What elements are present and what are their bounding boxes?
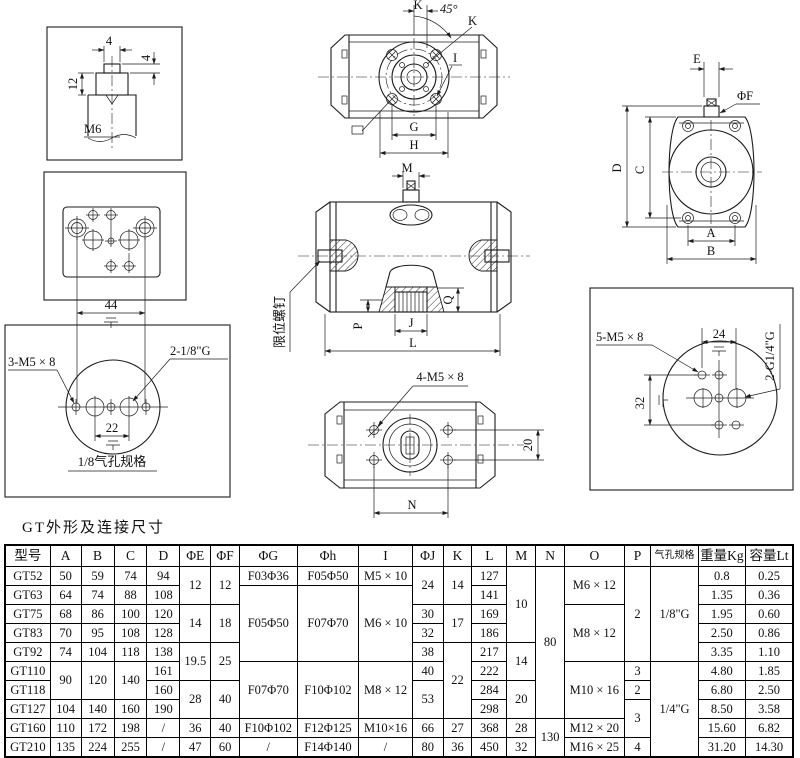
table-cell: M10 × 16	[565, 662, 625, 719]
table-cell: 19.5	[180, 643, 211, 681]
table-cell: 141	[472, 586, 507, 605]
table-cell: 20	[507, 681, 536, 719]
table-cell: 28	[180, 681, 211, 719]
table-cell: 60	[211, 738, 240, 758]
table-cell: 25	[211, 643, 240, 681]
table-cell: M5 × 10	[359, 567, 412, 586]
table-cell: F10Φ102	[297, 662, 359, 719]
table-cell: 120	[147, 605, 180, 624]
table-cell: 14	[507, 643, 536, 681]
dim-c-label: C	[633, 166, 647, 174]
table-cell: 14	[180, 605, 211, 643]
table-cell: 1.85	[746, 662, 793, 681]
table-cell: F12Φ125	[297, 719, 359, 738]
table-cell: 108	[147, 586, 180, 605]
table-cell: 36	[180, 719, 211, 738]
port-2-18g-label: 2-1/8"G	[170, 344, 211, 358]
table-cell: 15.60	[698, 719, 745, 738]
table-cell: 30	[412, 605, 443, 624]
table-cell: F03Φ36	[239, 567, 297, 586]
table-cell: 1/8"G	[651, 567, 698, 662]
table-cell: 0.8	[698, 567, 745, 586]
column-header: P	[624, 545, 651, 567]
table-cell: 4.80	[698, 662, 745, 681]
table-cell: 217	[472, 643, 507, 662]
table-cell: 40	[211, 719, 240, 738]
table-cell: 368	[472, 719, 507, 738]
table-cell: 127	[472, 567, 507, 586]
shaft-detail-view: 4 4 12 M6	[47, 27, 182, 160]
column-header: ΦJ	[412, 545, 443, 567]
column-header: ΦG	[239, 545, 297, 567]
table-cell: 88	[114, 586, 147, 605]
table-cell: 32	[412, 624, 443, 643]
table-cell: 2	[624, 681, 651, 700]
dim-e-label: E	[693, 52, 701, 66]
table-cell: 22	[443, 643, 472, 719]
table-cell: 8.50	[698, 700, 745, 719]
holes-4m5-label: 4-M5 × 8	[416, 370, 463, 384]
table-cell: 27	[443, 719, 472, 738]
column-header: Φh	[297, 545, 359, 567]
table-row: GT11090120140161F07Φ70F10Φ102M8 × 124022…	[5, 662, 793, 681]
symmetry-symbol	[712, 347, 726, 356]
table-cell: 0.25	[746, 567, 793, 586]
dim-k2-label: K	[468, 14, 477, 28]
table-cell: 14.30	[746, 738, 793, 758]
table-cell: /	[147, 738, 180, 758]
dim-12-label: 12	[66, 78, 80, 91]
table-cell: GT75	[5, 605, 50, 624]
table-cell: 47	[180, 738, 211, 758]
holes-3m5-label: 3-M5 × 8	[8, 355, 55, 369]
dim-22-label: 22	[106, 421, 119, 435]
table-cell: 190	[147, 700, 180, 719]
table-cell: 104	[50, 700, 81, 719]
table-cell: 120	[81, 662, 114, 700]
table-cell: 28	[507, 719, 536, 738]
table-cell: 18	[211, 605, 240, 643]
dim-h-label: H	[409, 138, 418, 152]
dim-4-right-label: 4	[139, 54, 153, 61]
table-cell: 74	[114, 567, 147, 586]
port-2-g14-label: 2-G1/4"G	[763, 331, 777, 381]
column-header: I	[359, 545, 412, 567]
table-cell: 1.95	[698, 605, 745, 624]
table-cell: 95	[81, 624, 114, 643]
dim-m-label: M	[401, 161, 412, 175]
column-header: A	[50, 545, 81, 567]
section-title: GT外形及连接尺寸	[22, 516, 165, 537]
dim-p-label: P	[351, 322, 365, 329]
table-cell: 169	[472, 605, 507, 624]
table-cell: /	[359, 738, 412, 758]
column-header: D	[147, 545, 180, 567]
table-cell: 110	[50, 719, 81, 738]
air-port-view-18: 3-M5 × 8 2-1/8"G 22 1/8气孔规格	[5, 325, 230, 497]
column-header: B	[81, 545, 114, 567]
table-cell: 3	[624, 662, 651, 681]
dimension-table: 型号ABCDΦEΦFΦGΦhIΦJKLMNOP气孔规格重量Kg容量LtGT525…	[4, 544, 794, 758]
table-cell: M12 × 20	[565, 719, 625, 738]
table-cell: 24	[412, 567, 443, 605]
technical-drawings: 4 4 12 M6	[0, 0, 800, 545]
table-cell: 90	[50, 662, 81, 700]
symmetry-symbol	[106, 441, 120, 450]
table-cell: /	[239, 738, 297, 758]
table-cell: 86	[81, 605, 114, 624]
dim-a-label: A	[706, 226, 715, 240]
table-cell: M6 × 12	[565, 567, 625, 605]
table-cell: GT83	[5, 624, 50, 643]
table-cell: 130	[536, 719, 565, 758]
limit-screw-label: 限位螺钉	[272, 296, 287, 348]
table-cell: 160	[147, 681, 180, 700]
table-cell: 70	[50, 624, 81, 643]
table-cell: 68	[50, 605, 81, 624]
table-cell: 450	[472, 738, 507, 758]
table-cell: 66	[412, 719, 443, 738]
table-cell: 1/4"G	[651, 662, 698, 758]
table-cell: 36	[443, 738, 472, 758]
table-cell: 64	[50, 586, 81, 605]
dim-j-label: J	[409, 316, 414, 330]
dim-20-label: 20	[521, 439, 535, 452]
column-header: L	[472, 545, 507, 567]
holes-5m5-label: 5-M5 × 8	[596, 330, 643, 344]
table-cell: M8 × 12	[359, 662, 412, 719]
table-cell: 4	[624, 738, 651, 758]
table-cell: M16 × 25	[565, 738, 625, 758]
table-cell: 32	[507, 738, 536, 758]
air-port-view-14: 5-M5 × 8 24 32 2-G1/4"G	[590, 288, 793, 490]
table-cell: 59	[81, 567, 114, 586]
column-header: 重量Kg	[698, 545, 745, 567]
table-cell: 6.82	[746, 719, 793, 738]
table-cell: 118	[114, 643, 147, 662]
mounting-pad-view: 44	[44, 172, 186, 403]
table-cell: 6.80	[698, 681, 745, 700]
table-cell: 74	[81, 586, 114, 605]
dim-24-label: 24	[713, 327, 726, 341]
column-header: 气孔规格	[651, 545, 698, 567]
table-cell: /	[147, 719, 180, 738]
top-view: K 45° K I G H	[318, 0, 510, 158]
column-header: C	[114, 545, 147, 567]
table-cell: 10	[507, 567, 536, 643]
side-view: E ΦF D C A B	[610, 52, 762, 264]
table-cell: 14	[443, 567, 472, 605]
table-cell: M8 × 12	[565, 605, 625, 662]
table-cell: 2	[624, 567, 651, 662]
table-cell: 40	[211, 681, 240, 719]
table-cell: F14Φ140	[297, 738, 359, 758]
table-cell: 140	[81, 700, 114, 719]
dim-l-label: L	[409, 336, 417, 350]
table-cell: 3.58	[746, 700, 793, 719]
dim-d-label: D	[610, 163, 624, 172]
catalog-page: 4 4 12 M6	[0, 0, 800, 758]
table-cell: M6 × 10	[359, 586, 412, 662]
table-cell: 0.36	[746, 586, 793, 605]
table-cell: 160	[114, 700, 147, 719]
table-cell: 12	[211, 567, 240, 605]
table-cell: 298	[472, 700, 507, 719]
table-cell: 12	[180, 567, 211, 605]
dim-44-label: 44	[105, 298, 118, 312]
table-cell: F05Φ50	[297, 567, 359, 586]
table-cell: 17	[443, 605, 472, 643]
table-cell: GT63	[5, 586, 50, 605]
column-header: ΦF	[211, 545, 240, 567]
table-cell: GT210	[5, 738, 50, 758]
dim-k-label: K	[413, 0, 422, 12]
table-cell: 1.35	[698, 586, 745, 605]
table-cell: 161	[147, 662, 180, 681]
dim-q-label: Q	[441, 295, 455, 304]
table-cell: 3.35	[698, 643, 745, 662]
column-header: 容量Lt	[746, 545, 793, 567]
table-cell: 222	[472, 662, 507, 681]
table-cell: 1.10	[746, 643, 793, 662]
table-cell: 135	[50, 738, 81, 758]
table-cell: 186	[472, 624, 507, 643]
table-cell: F10Φ102	[239, 719, 297, 738]
dim-b-label: B	[707, 244, 715, 258]
table-cell: 31.20	[698, 738, 745, 758]
table-cell: 3	[624, 700, 651, 738]
table-cell: 38	[412, 643, 443, 662]
dim-n-label: N	[407, 498, 416, 512]
angle-45-label: 45°	[440, 2, 458, 16]
dim-32-label: 32	[633, 397, 647, 410]
table-cell: 255	[114, 738, 147, 758]
column-header: ΦE	[180, 545, 211, 567]
table-cell: 0.60	[746, 605, 793, 624]
bottom-view: 4-M5 × 8 N 20	[308, 370, 544, 518]
hole-i-label: I	[453, 51, 457, 65]
table-cell: 0.86	[746, 624, 793, 643]
symmetry-symbol	[104, 318, 118, 328]
table-cell: 100	[114, 605, 147, 624]
table-cell: 80	[412, 738, 443, 758]
table-cell: 140	[114, 662, 147, 700]
table-cell: F05Φ50	[239, 586, 297, 662]
column-header: N	[536, 545, 565, 567]
table-cell: 2.50	[746, 681, 793, 700]
dim-g-label: G	[409, 120, 418, 134]
table-cell: 224	[81, 738, 114, 758]
table-cell: GT52	[5, 567, 50, 586]
port-spec-caption: 1/8气孔规格	[78, 454, 147, 469]
column-header: O	[565, 545, 625, 567]
table-cell: 74	[50, 643, 81, 662]
table-cell: GT160	[5, 719, 50, 738]
column-header: 型号	[5, 545, 50, 567]
dim-f-label: ΦF	[737, 89, 753, 103]
table-cell: M10×16	[359, 719, 412, 738]
table-cell: 40	[412, 662, 443, 681]
table-cell: GT127	[5, 700, 50, 719]
table-cell: 138	[147, 643, 180, 662]
table-cell: 80	[536, 567, 565, 719]
table-cell: 172	[81, 719, 114, 738]
front-view: M P J Q	[272, 161, 530, 356]
table-cell: 284	[472, 681, 507, 700]
table-cell: GT118	[5, 681, 50, 700]
table-cell: 198	[114, 719, 147, 738]
table-cell: 50	[50, 567, 81, 586]
table-cell: 53	[412, 681, 443, 719]
table-cell: F07Φ70	[297, 586, 359, 662]
table-cell: 104	[81, 643, 114, 662]
column-header: K	[443, 545, 472, 567]
table-row: GT52505974941212F03Φ36F05Φ50M5 × 1024141…	[5, 567, 793, 586]
table-cell: 2.50	[698, 624, 745, 643]
table-cell: GT110	[5, 662, 50, 681]
table-cell: 128	[147, 624, 180, 643]
thread-m6-label: M6	[84, 122, 101, 136]
column-header: M	[507, 545, 536, 567]
table-cell: 108	[114, 624, 147, 643]
table-cell: F07Φ70	[239, 662, 297, 719]
dim-4-top-label: 4	[106, 34, 113, 48]
table-cell: 94	[147, 567, 180, 586]
table-cell: GT92	[5, 643, 50, 662]
